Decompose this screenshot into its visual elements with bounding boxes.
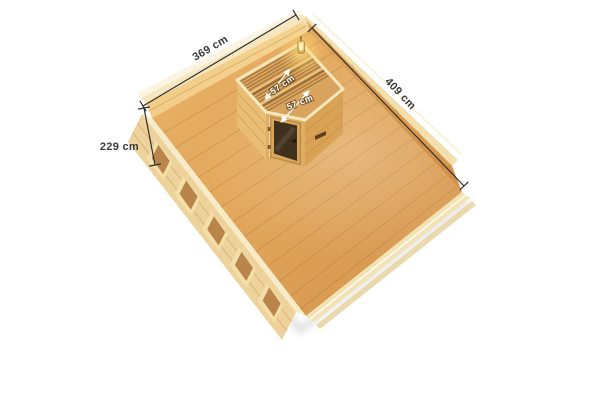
sauna-lamp (278, 29, 324, 75)
height-dimension-label: 229 cm (100, 141, 139, 153)
door-handle (293, 139, 297, 143)
isometric-house-drawing: 57 cm 57 cm 369 cm 409 cm 229 cm (0, 0, 600, 400)
door-hinge (268, 127, 271, 131)
sauna-door (268, 117, 301, 165)
product-dimension-diagram: 57 cm 57 cm 369 cm 409 cm 229 cm (0, 0, 600, 400)
door-hinge (268, 145, 271, 149)
